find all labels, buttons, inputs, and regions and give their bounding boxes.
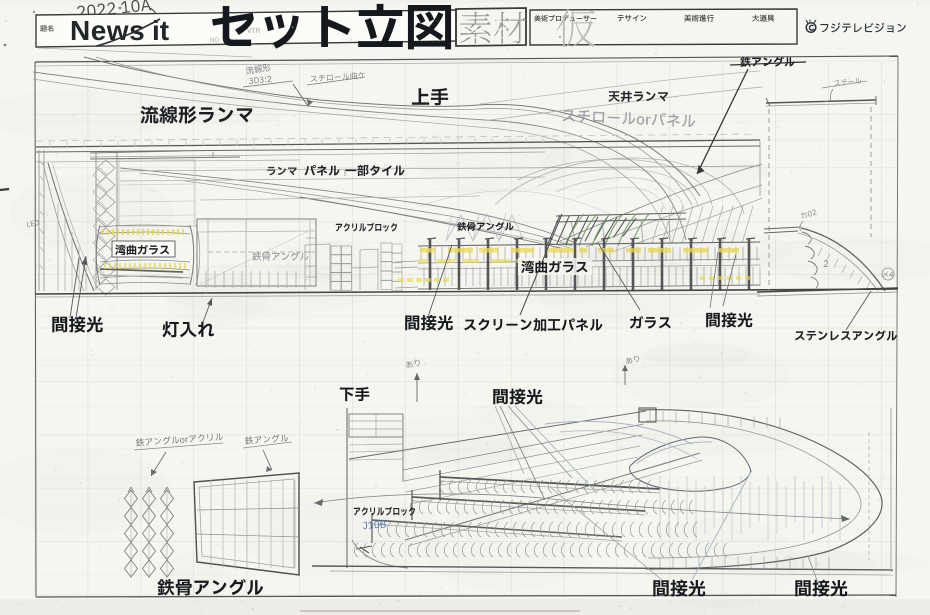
svg-text:News: News bbox=[70, 15, 145, 46]
svg-text:it: it bbox=[152, 15, 169, 46]
